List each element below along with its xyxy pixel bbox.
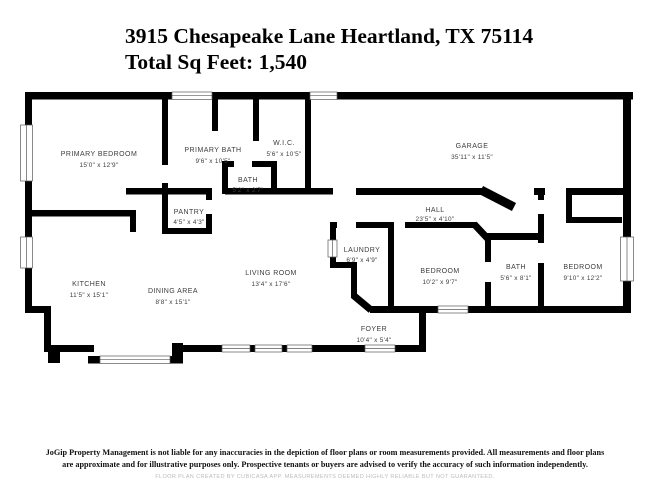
room-label-primary-bedroom: PRIMARY BEDROOM	[61, 151, 138, 158]
room-label-hall: HALL	[425, 207, 444, 214]
page-title: 3915 Chesapeake Lane Heartland, TX 75114	[125, 24, 533, 48]
room-dims-dining-area: 8'8" x 15'1"	[155, 299, 190, 306]
room-dims-foyer: 10'4" x 5'4"	[356, 337, 391, 344]
room-label-primary-bath: PRIMARY BATH	[184, 147, 241, 154]
room-dims-primary-bedroom: 15'0" x 12'9"	[80, 162, 119, 169]
room-label-pantry: PANTRY	[174, 209, 204, 216]
room-dims-laundry: 6'9" x 4'9"	[346, 257, 377, 264]
floor-plan-page: 3915 Chesapeake Lane Heartland, TX 75114…	[0, 0, 650, 488]
room-label-bedroom-2: BEDROOM	[563, 264, 602, 271]
room-label-bath-2: BATH	[506, 264, 526, 271]
room-dims-garage: 35'11" x 11'5"	[451, 154, 493, 161]
room-dims-wic: 5'6" x 10'5"	[266, 151, 301, 158]
room-label-bedroom-1: BEDROOM	[420, 268, 459, 275]
floor-plan-canvas: 3915 Chesapeake Lane Heartland, TX 75114…	[0, 0, 650, 488]
room-dims-bedroom-1: 10'2" x 9'7"	[422, 279, 457, 286]
room-label-kitchen: KITCHEN	[72, 281, 106, 288]
room-dims-bath-2: 5'6" x 8'1"	[500, 275, 531, 282]
room-dims-living-room: 13'4" x 17'6"	[252, 281, 291, 288]
disclaimer-line-2: are approximate and for illustrative pur…	[62, 460, 588, 469]
room-dims-pantry: 4'5" x 4'3"	[173, 219, 204, 226]
room-dims-kitchen: 11'5" x 15'1"	[70, 292, 108, 299]
room-dims-bedroom-2: 9'10" x 12'2"	[564, 275, 603, 282]
room-label-bath-small: BATH	[238, 177, 258, 184]
room-dims-hall: 23'5" x 4'10"	[416, 216, 455, 223]
total-sqfeet-label: Total Sq Feet: 1,540	[125, 50, 307, 74]
walls	[25, 92, 633, 364]
room-label-dining-area: DINING AREA	[148, 288, 198, 295]
room-dims-bath-small: 5'2" x 2'7"	[232, 187, 263, 194]
disclaimer-line-1: JoGip Property Management is not liable …	[46, 448, 605, 457]
room-label-foyer: FOYER	[361, 326, 387, 333]
cubicasa-credit: FLOOR PLAN CREATED BY CUBICASA APP. MEAS…	[155, 474, 495, 480]
room-label-laundry: LAUNDRY	[344, 247, 380, 254]
room-label-living-room: LIVING ROOM	[245, 270, 297, 277]
room-label-garage: GARAGE	[456, 143, 489, 150]
room-label-wic: W.I.C.	[273, 140, 295, 147]
room-dims-primary-bath: 9'6" x 10'5"	[195, 158, 230, 165]
